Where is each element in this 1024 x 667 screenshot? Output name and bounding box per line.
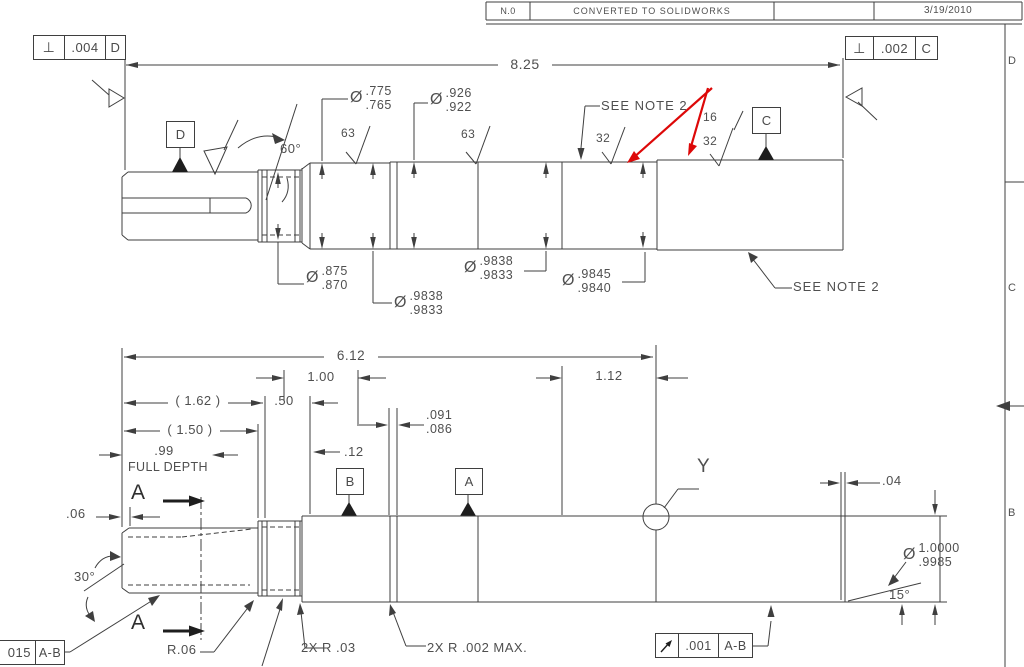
- dim-dia-9838-a: Ø .9838.9833: [394, 289, 443, 317]
- dim-overall-upper: 8.25: [498, 56, 552, 72]
- drawing-sheet: N.0 CONVERTED TO SOLIDWORKS 3/19/2010 D …: [0, 0, 1024, 667]
- dia-lo: .765: [365, 98, 391, 112]
- dia-lo: .922: [445, 100, 471, 114]
- dim-angle-15: 15°: [889, 587, 910, 602]
- section-label-a-bottom: A: [131, 611, 145, 635]
- sheet-border: [996, 24, 1024, 667]
- dia-lo: .9833: [479, 268, 513, 282]
- dim-06: .06: [66, 506, 86, 521]
- dim-ref-162: ( 1.62 ): [170, 393, 226, 408]
- datum-flag-b: B: [336, 468, 364, 495]
- fcf-datum-ref: C: [915, 37, 937, 59]
- upper-shaft-outline: [122, 160, 843, 250]
- fcf-tolerance: .004: [64, 36, 105, 59]
- dim-hi: .091: [426, 408, 452, 422]
- rev-date: 3/19/2010: [874, 5, 1022, 16]
- dim-dia-926: Ø .926.922: [430, 86, 472, 114]
- dia-lo: .870: [321, 278, 347, 292]
- finish-16: 16: [703, 110, 717, 124]
- dim-12: .12: [344, 444, 364, 459]
- label-full-depth: FULL DEPTH: [128, 460, 208, 474]
- drawing-linework: [0, 0, 1024, 667]
- dim-2x-r002: 2X R .002 MAX.: [427, 640, 527, 655]
- diameter-symbol: Ø: [464, 259, 476, 277]
- fcf-perpendicularity-d: ⊥ .004 D: [33, 35, 126, 60]
- rev-description: CONVERTED TO SOLIDWORKS: [530, 6, 774, 16]
- fcf-datum-ref: A-B: [35, 641, 64, 664]
- dia-hi: .875: [321, 264, 347, 278]
- dim-ref-150: ( 1.50 ): [162, 422, 218, 437]
- dim-100: 1.00: [296, 369, 346, 384]
- finish-63-a: 63: [341, 126, 355, 140]
- label-y: Y: [697, 456, 710, 478]
- fcf-datum-ref: A-B: [718, 634, 752, 657]
- fcf-runout: .001 A-B: [655, 633, 753, 658]
- dia-lo: .9833: [409, 303, 443, 317]
- dim-angle-30: 30°: [74, 569, 95, 584]
- fcf-tolerance: .002: [873, 37, 915, 59]
- dim-99: .99: [144, 443, 184, 458]
- dim-angle-60: 60°: [280, 141, 301, 156]
- fcf-left-truncated: 015 A-B: [0, 640, 65, 665]
- dim-04: .04: [882, 473, 902, 488]
- note-see-note-right: SEE NOTE 2: [793, 279, 880, 294]
- perpendicularity-icon: ⊥: [846, 37, 873, 59]
- dim-dia-10000: Ø 1.0000.9985: [903, 541, 960, 569]
- diameter-symbol: Ø: [350, 89, 362, 107]
- rev-number: N.0: [486, 6, 530, 16]
- diameter-symbol: Ø: [306, 269, 318, 287]
- dia-hi: .926: [445, 86, 471, 100]
- perpendicularity-icon: ⊥: [34, 36, 64, 59]
- section-line-aa: [163, 496, 205, 641]
- dia-lo: .9985: [918, 555, 959, 569]
- finish-32-b: 32: [703, 134, 717, 148]
- diameter-symbol: Ø: [562, 272, 574, 290]
- zone-label-d: D: [1008, 55, 1016, 67]
- dia-hi: .9838: [409, 289, 443, 303]
- upper-diameter-ticks: [275, 162, 646, 249]
- fcf-perpendicularity-c: ⊥ .002 C: [845, 36, 938, 60]
- dim-lo: .086: [426, 422, 452, 436]
- dim-112: 1.12: [584, 368, 634, 383]
- finish-32-a: 32: [596, 131, 610, 145]
- dia-hi: 1.0000: [918, 541, 959, 555]
- runout-icon: [656, 634, 678, 657]
- fcf-datum-ref: D: [105, 36, 125, 59]
- zone-label-c: C: [1008, 282, 1016, 294]
- section-label-a-top: A: [131, 481, 145, 505]
- dim-dia-875: Ø .875.870: [306, 264, 348, 292]
- note-see-note-top: SEE NOTE 2: [601, 98, 688, 113]
- datum-flag-d: D: [166, 121, 195, 148]
- datum-flag-c: C: [752, 107, 781, 134]
- dim-2x-r03: 2X R .03: [301, 640, 356, 655]
- diameter-symbol: Ø: [903, 546, 915, 564]
- dim-dia-9845: Ø .9845.9840: [562, 267, 611, 295]
- dim-r06: R.06: [167, 642, 196, 657]
- dia-hi: .775: [365, 84, 391, 98]
- dim-50: .50: [264, 393, 304, 408]
- chamfer-30-lines: [84, 551, 124, 622]
- datum-flag-a: A: [455, 468, 483, 495]
- y-target: [643, 489, 699, 530]
- lower-shaft-outline: [122, 516, 947, 602]
- dia-lo: .9840: [577, 281, 611, 295]
- dim-dia-9838-b: Ø .9838.9833: [464, 254, 513, 282]
- dia-hi: .9845: [577, 267, 611, 281]
- diameter-symbol: Ø: [430, 91, 442, 109]
- diameter-symbol: Ø: [394, 294, 406, 312]
- fcf-tolerance: 015: [0, 641, 35, 664]
- dim-overall-lower: 6.12: [326, 348, 376, 363]
- lower-dim-lines: [96, 345, 938, 625]
- zone-label-b: B: [1008, 507, 1016, 519]
- dim-dia-775: Ø .775.765: [350, 84, 392, 112]
- fcf-tolerance: .001: [678, 634, 718, 657]
- dim-groove-091: .091.086: [426, 408, 452, 436]
- dia-hi: .9838: [479, 254, 513, 268]
- finish-63-b: 63: [461, 127, 475, 141]
